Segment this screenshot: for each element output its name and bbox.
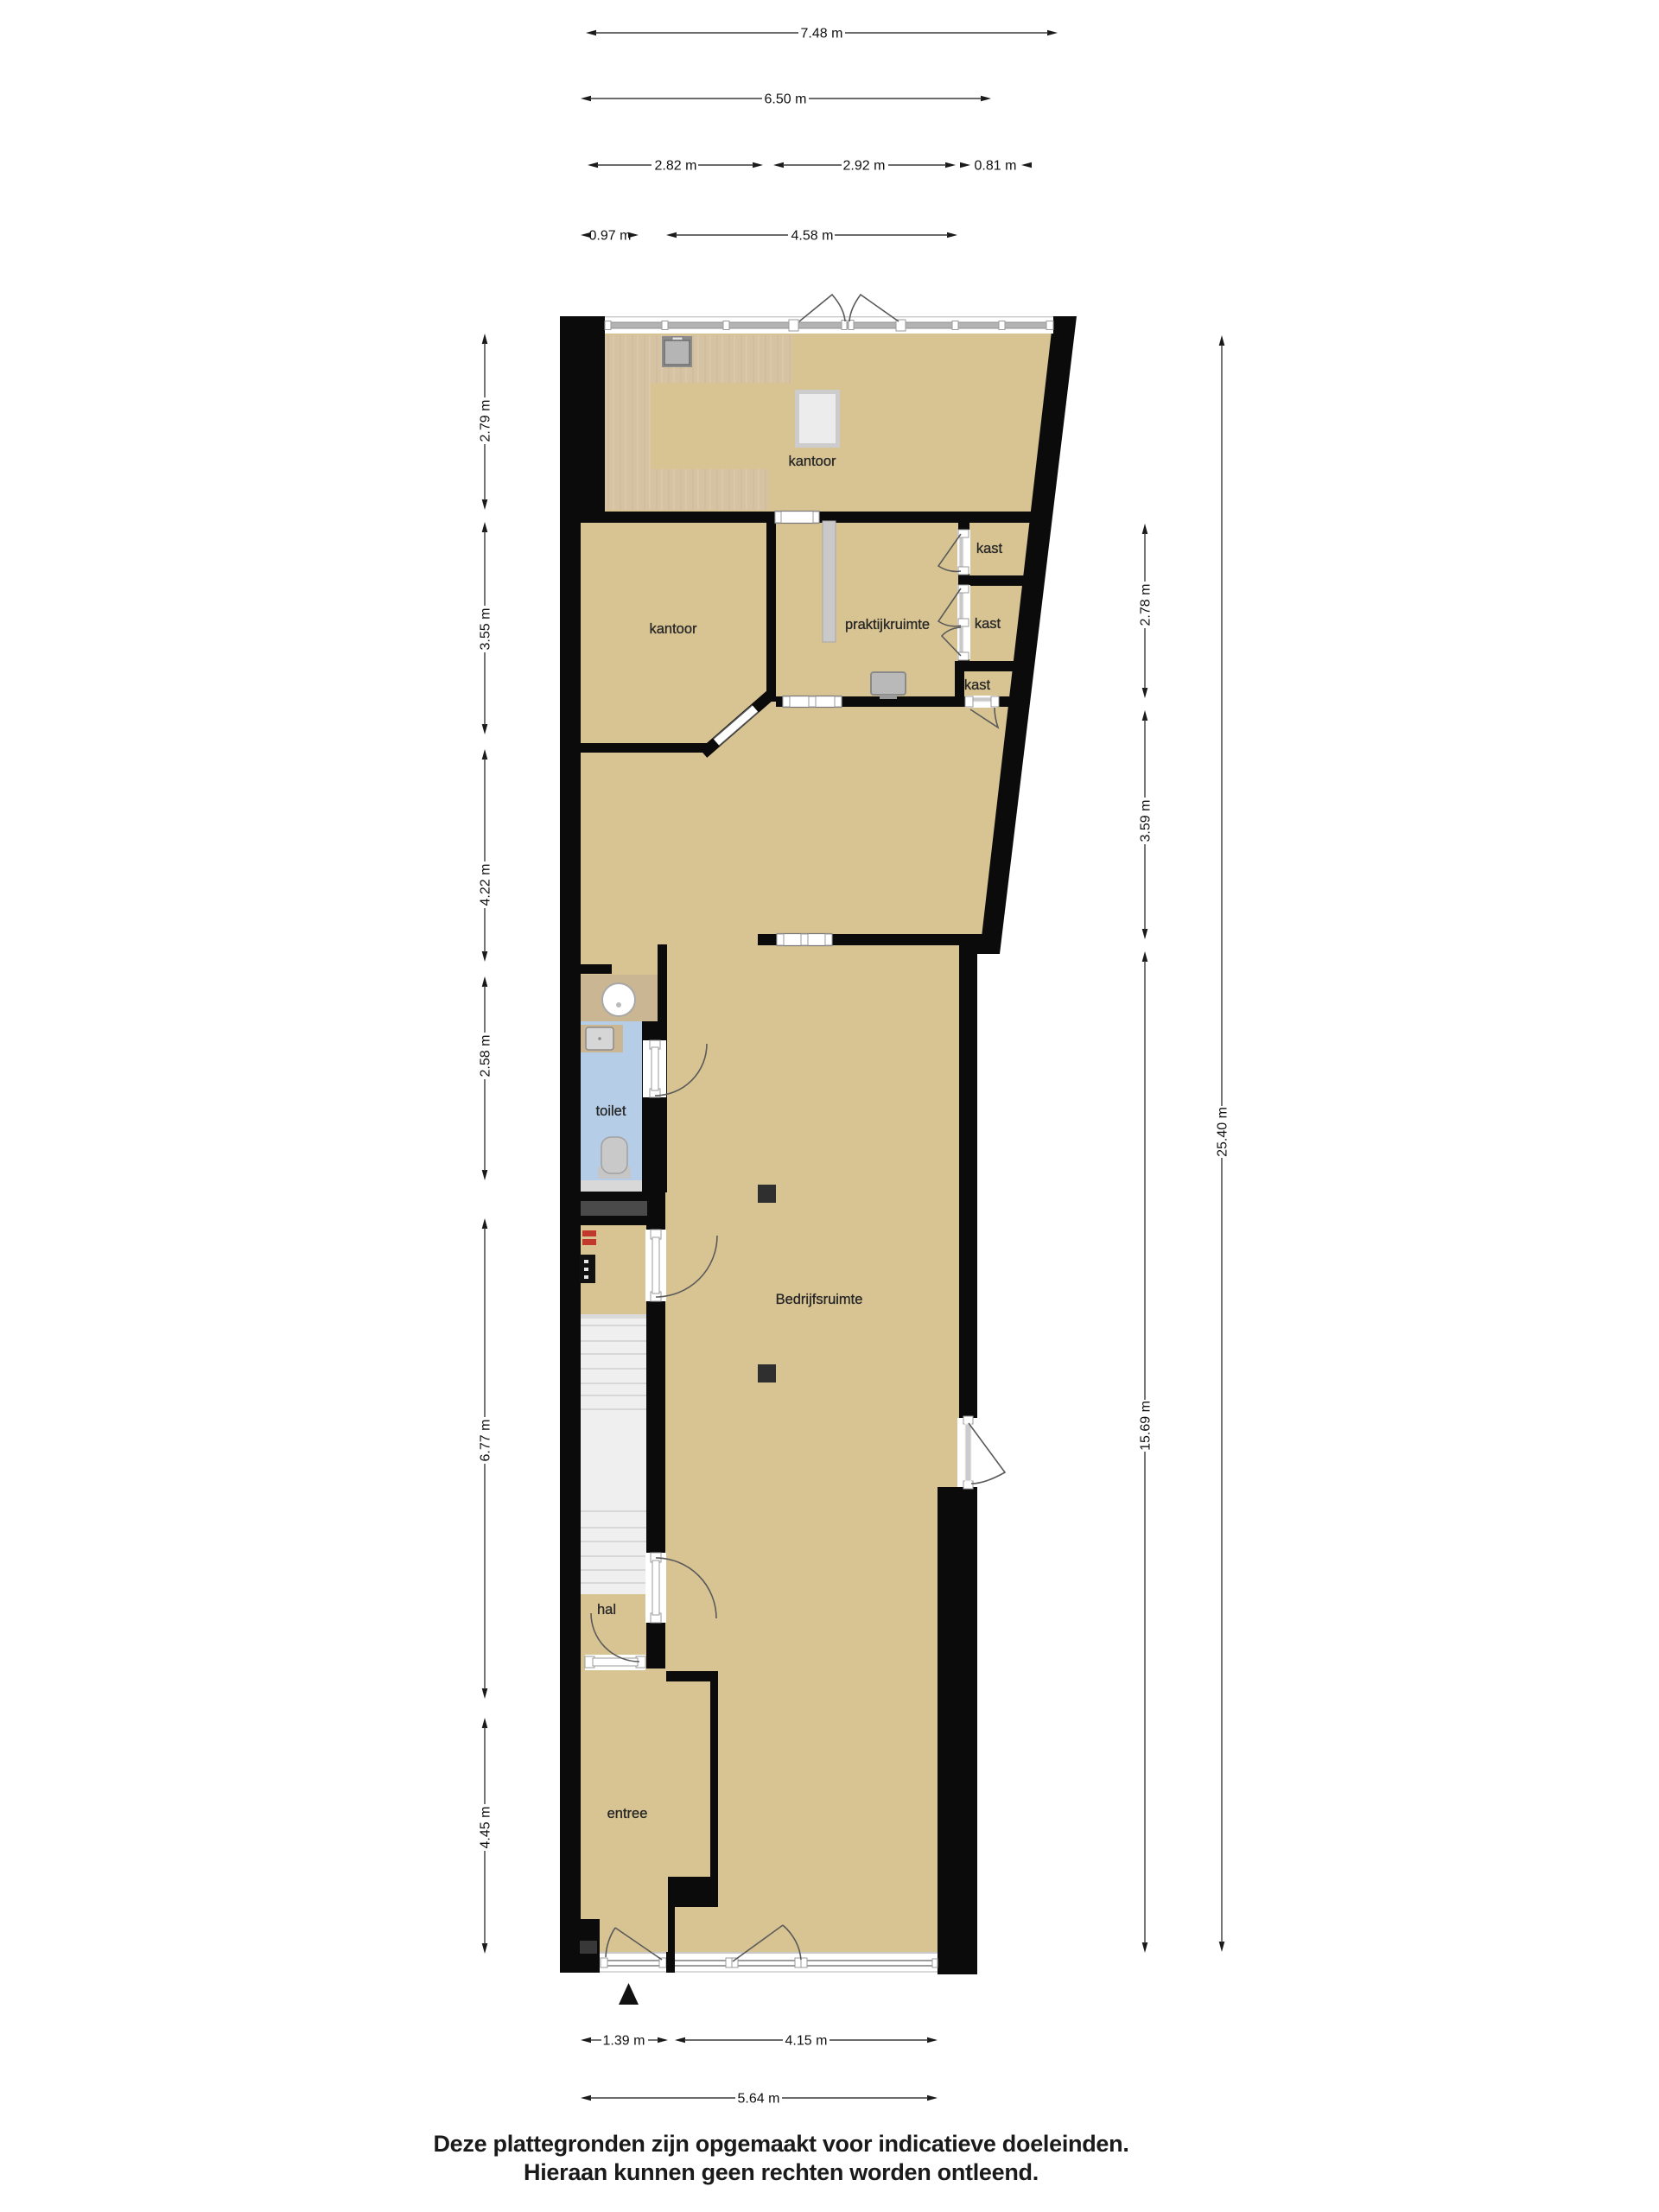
svg-text:2.78 m: 2.78 m [1139,584,1154,626]
svg-text:4.45 m: 4.45 m [479,1807,493,1849]
svg-text:2.79 m: 2.79 m [479,400,493,442]
svg-text:2.82 m: 2.82 m [655,159,697,174]
svg-text:15.69 m: 15.69 m [1139,1401,1154,1451]
svg-text:4.58 m: 4.58 m [791,229,834,244]
svg-text:7.48 m: 7.48 m [801,27,843,41]
svg-text:kast: kast [975,616,1001,632]
svg-text:kantoor: kantoor [649,621,697,637]
svg-text:Hieraan kunnen geen rechten wo: Hieraan kunnen geen rechten worden ontle… [524,2159,1039,2185]
svg-text:2.58 m: 2.58 m [479,1035,493,1077]
svg-text:5.64 m: 5.64 m [738,2092,780,2107]
svg-text:25.40 m: 25.40 m [1216,1107,1230,1157]
svg-text:3.55 m: 3.55 m [479,608,493,651]
svg-text:Deze plattegronden zijn opgema: Deze plattegronden zijn opgemaakt voor i… [433,2131,1128,2157]
svg-text:1.39 m: 1.39 m [603,2034,645,2049]
svg-text:4.22 m: 4.22 m [479,864,493,906]
svg-text:praktijkruimte: praktijkruimte [845,617,930,632]
svg-text:2.92 m: 2.92 m [843,159,886,174]
svg-text:hal: hal [597,1602,616,1618]
svg-text:6.77 m: 6.77 m [479,1420,493,1462]
svg-text:kantoor: kantoor [788,454,836,469]
svg-text:kast: kast [964,677,991,693]
svg-text:entree: entree [607,1806,648,1821]
svg-text:0.81 m: 0.81 m [975,159,1017,174]
svg-text:toilet: toilet [596,1103,626,1119]
svg-text:4.15 m: 4.15 m [785,2034,828,2049]
svg-text:kast: kast [976,541,1003,556]
svg-text:0.97 m: 0.97 m [589,229,632,244]
svg-text:3.59 m: 3.59 m [1139,800,1154,842]
svg-text:6.50 m: 6.50 m [765,92,807,107]
svg-text:Bedrijfsruimte: Bedrijfsruimte [776,1292,863,1307]
